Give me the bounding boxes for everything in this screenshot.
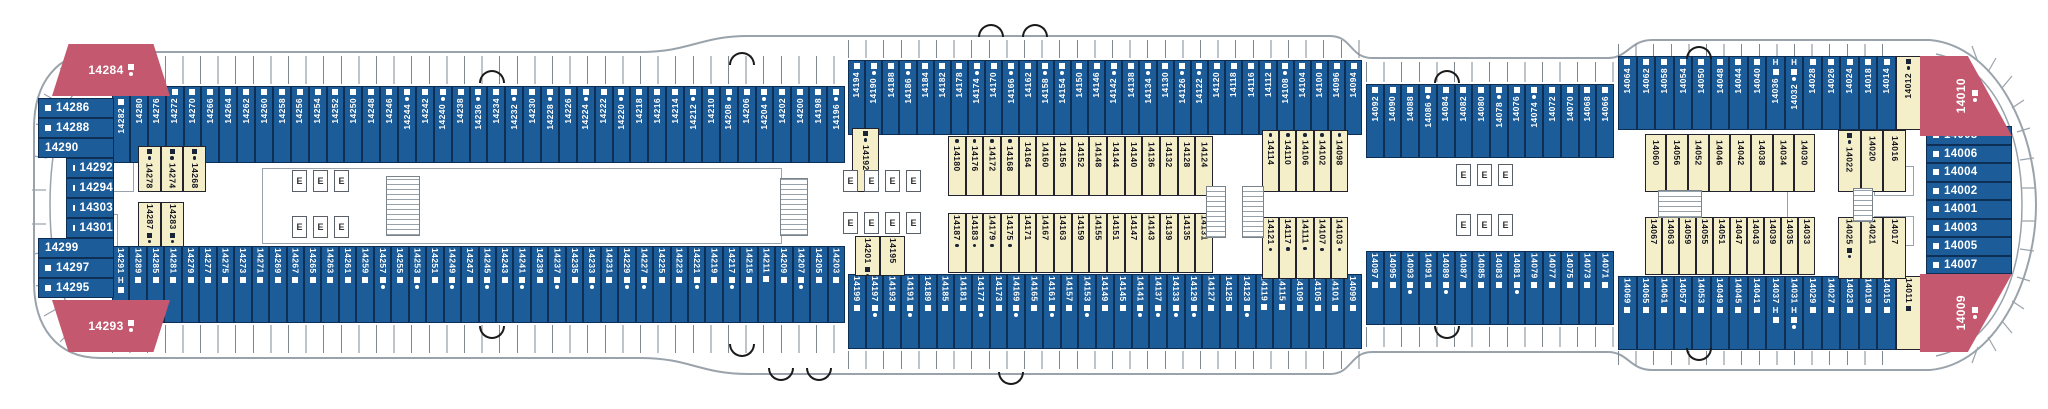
cabin-14175[interactable]: 14175 xyxy=(1001,213,1019,273)
cabin-14117[interactable]: 14117 xyxy=(1279,217,1296,279)
cabin-14257[interactable]: 14257 xyxy=(374,246,391,323)
cabin-14040[interactable]: 14040 xyxy=(1748,56,1767,130)
cabin-14282[interactable]: H14282 xyxy=(112,86,130,163)
cabin-14286[interactable]: 14286 xyxy=(38,98,114,118)
cabin-14253[interactable]: 14253 xyxy=(409,246,426,323)
cabin-14180[interactable]: 14180 xyxy=(948,136,966,196)
cabin-14075[interactable]: 14075 xyxy=(1561,251,1579,325)
cabin-14297[interactable]: 14297 xyxy=(38,258,114,278)
cabin-14004[interactable]: 14004 xyxy=(1926,163,2012,182)
cabin-14143[interactable]: 14143 xyxy=(1142,213,1160,273)
cabin-14287[interactable]: 14287 xyxy=(138,202,161,248)
cabin-number: 14117 xyxy=(1284,219,1293,244)
cabin-14218[interactable]: 14218 xyxy=(630,86,648,163)
cabin-14083[interactable]: 14083 xyxy=(1490,251,1508,325)
cabin-14090[interactable]: 14090 xyxy=(1384,84,1402,158)
cabin-14106[interactable]: 14106 xyxy=(1296,130,1313,192)
cabin-14191[interactable]: 14191 xyxy=(901,274,919,349)
cabin-14183[interactable]: 14183 xyxy=(966,213,984,273)
cabin-14206[interactable]: 14206 xyxy=(738,86,756,163)
cabin-14076[interactable]: 14076 xyxy=(1508,84,1526,158)
cabin-14177[interactable]: 14177 xyxy=(972,274,990,349)
cabin-14140[interactable]: 14140 xyxy=(1125,136,1143,196)
cabin-14021[interactable]: 14021 xyxy=(1861,217,1884,279)
cabin-14176[interactable]: 14176 xyxy=(966,136,984,196)
cabin-14050[interactable]: 14050 xyxy=(1692,56,1711,130)
wheelchair-accessible-mark: H xyxy=(1791,59,1797,67)
cabin-14214[interactable]: 14214 xyxy=(666,86,684,163)
cabin-14138[interactable]: 14138 xyxy=(1122,60,1139,135)
cabin-14163[interactable]: 14163 xyxy=(1054,213,1072,273)
cabin-14144[interactable]: 14144 xyxy=(1107,136,1125,196)
cabin-14111[interactable]: 14111 xyxy=(1296,217,1313,279)
cabin-number: 14021 xyxy=(1868,219,1877,245)
cabin-14071[interactable]: 14071 xyxy=(1596,251,1614,325)
cabin-14112[interactable]: 14112 xyxy=(1259,60,1276,135)
cabin-14087[interactable]: 14087 xyxy=(1455,251,1473,325)
cabin-14186[interactable]: 14186 xyxy=(899,60,916,135)
cabin-14126[interactable]: 14126 xyxy=(1174,60,1191,135)
cabin-number: 14189 xyxy=(923,276,932,302)
cabin-14190[interactable]: 14190 xyxy=(865,60,882,135)
cabin-number: 14179 xyxy=(988,215,997,241)
cabin-14188[interactable]: 14188 xyxy=(882,60,899,135)
cabin-14223[interactable]: 14223 xyxy=(671,246,688,323)
cabin-14158[interactable]: 14158 xyxy=(1037,60,1054,135)
cabin-14059[interactable]: 14059 xyxy=(1679,217,1696,275)
cabin-14164[interactable]: 14164 xyxy=(1019,136,1037,196)
cabin-14277[interactable]: 14277 xyxy=(199,246,216,323)
cabin-14012[interactable]: 14012 xyxy=(1896,56,1921,130)
cabin-14110[interactable]: 14110 xyxy=(1279,130,1296,192)
cabin-14072[interactable]: 14072 xyxy=(1543,84,1561,158)
cabin-14152[interactable]: 14152 xyxy=(1072,136,1090,196)
cabin-14070[interactable]: 14070 xyxy=(1561,84,1579,158)
cabin-14030[interactable]: 14030 xyxy=(1794,134,1815,192)
cabin-14303[interactable]: 14303 xyxy=(66,198,114,218)
cabin-14029[interactable]: 14029 xyxy=(1803,276,1822,350)
cabin-14007[interactable]: 14007 xyxy=(1926,256,2012,275)
cabin-14015[interactable]: 14015 xyxy=(1877,276,1896,350)
cabin-14225[interactable]: 14225 xyxy=(653,246,670,323)
cabin-14026[interactable]: 14026 xyxy=(1822,56,1841,130)
cabin-14147[interactable]: 14147 xyxy=(1125,213,1143,273)
cabin-14068[interactable]: 14068 xyxy=(1579,84,1597,158)
cabin-14242[interactable]: 14242 xyxy=(416,86,434,163)
cabin-14230[interactable]: 14230 xyxy=(523,86,541,163)
cabin-14274[interactable]: 14274 xyxy=(161,146,184,192)
cabin-14073[interactable]: 14073 xyxy=(1579,251,1597,325)
cabin-14086[interactable]: 14086 xyxy=(1419,84,1437,158)
cabin-14017[interactable]: 14017 xyxy=(1883,217,1906,279)
cabin-14139[interactable]: 14139 xyxy=(1160,213,1178,273)
cabin-14035[interactable]: 14035 xyxy=(1781,217,1798,275)
cabin-14227[interactable]: 14227 xyxy=(636,246,653,323)
cabin-14049[interactable]: 14049 xyxy=(1711,276,1730,350)
sofa-bed-square-mark xyxy=(207,89,213,95)
cabin-14095[interactable]: 14095 xyxy=(1384,251,1402,325)
cabin-14234[interactable]: 14234 xyxy=(487,86,505,163)
cabin-14174[interactable]: 14174 xyxy=(968,60,985,135)
cabin-14229[interactable]: 14229 xyxy=(618,246,635,323)
cabin-14233[interactable]: 14233 xyxy=(583,246,600,323)
cabin-14226[interactable]: 14226 xyxy=(559,86,577,163)
cabin-number: 14162 xyxy=(1024,72,1033,98)
cabin-14044[interactable]: 14044 xyxy=(1729,56,1748,130)
cabin-14299[interactable]: 14299 xyxy=(38,238,114,258)
sofa-bed-square-mark xyxy=(1865,59,1871,65)
cabin-14269[interactable]: 14269 xyxy=(269,246,286,323)
cabin-14118[interactable]: 14118 xyxy=(1225,60,1242,135)
cabin-14212[interactable]: 14212 xyxy=(684,86,702,163)
cabin-14150[interactable]: 14150 xyxy=(1071,60,1088,135)
cabin-14156[interactable]: 14156 xyxy=(1054,136,1072,196)
cabin-14262[interactable]: 14262 xyxy=(237,86,255,163)
cabin-14264[interactable]: 14264 xyxy=(219,86,237,163)
cabin-14261[interactable]: 14261 xyxy=(339,246,356,323)
cabin-14194[interactable]: 14194 xyxy=(848,60,865,135)
cabin-14132[interactable]: 14132 xyxy=(1160,136,1178,196)
cabin-14243[interactable]: 14243 xyxy=(496,246,513,323)
cabin-14166[interactable]: 14166 xyxy=(1002,60,1019,135)
cabin-14205[interactable]: 14205 xyxy=(810,246,827,323)
cabin-14104[interactable]: 14104 xyxy=(1294,60,1311,135)
cabin-14241[interactable]: 14241 xyxy=(513,246,530,323)
cabin-14252[interactable]: 14252 xyxy=(327,86,345,163)
cabin-14121[interactable]: 14121 xyxy=(1262,217,1279,279)
cabin-14045[interactable]: 14045 xyxy=(1729,276,1748,350)
cabin-14268[interactable]: 14268 xyxy=(183,146,206,192)
cabin-14115[interactable]: 14115 xyxy=(1273,274,1291,349)
cabin-14184[interactable]: 14184 xyxy=(917,60,934,135)
cabin-14057[interactable]: 14057 xyxy=(1674,276,1693,350)
suite-cabin-14293[interactable]: 14293 xyxy=(52,300,170,352)
cabin-14199[interactable]: 14199 xyxy=(848,274,866,349)
cabin-14037[interactable]: 14037H xyxy=(1766,276,1785,350)
cabin-14065[interactable]: 14065 xyxy=(1637,276,1656,350)
cabin-14248[interactable]: 14248 xyxy=(362,86,380,163)
cabin-14129[interactable]: 14129 xyxy=(1185,274,1203,349)
cabin-14207[interactable]: 14207 xyxy=(793,246,810,323)
cabin-14288[interactable]: 14288 xyxy=(38,118,114,138)
cabin-14221[interactable]: 14221 xyxy=(688,246,705,323)
cabin-14116[interactable]: 14116 xyxy=(1242,60,1259,135)
cabin-14251[interactable]: 14251 xyxy=(426,246,443,323)
cabin-14034[interactable]: 14034 xyxy=(1773,134,1794,192)
cabin-14168[interactable]: 14168 xyxy=(1001,136,1019,196)
cabin-14062[interactable]: 14062 xyxy=(1637,56,1656,130)
cabin-14239[interactable]: 14239 xyxy=(531,246,548,323)
cabin-14122[interactable]: 14122 xyxy=(1191,60,1208,135)
cabin-14096[interactable]: 14096 xyxy=(1328,60,1345,135)
cabin-14011[interactable]: 14011 xyxy=(1896,276,1921,350)
cabin-14200[interactable]: 14200 xyxy=(791,86,809,163)
cabin-14022[interactable]: 14022 xyxy=(1838,130,1861,192)
cabin-14056[interactable]: 14056 xyxy=(1666,134,1687,192)
cabin-14094[interactable]: 14094 xyxy=(1345,60,1362,135)
cabin-14136[interactable]: 14136 xyxy=(1142,136,1160,196)
cabin-14036[interactable]: H14036 xyxy=(1766,56,1785,130)
cabin-14003[interactable]: 14003 xyxy=(1926,219,2012,238)
cabin-14074[interactable]: 14074 xyxy=(1525,84,1543,158)
cabin-14165[interactable]: 14165 xyxy=(1025,274,1043,349)
cabin-14195[interactable]: 14195 xyxy=(880,236,905,276)
cabin-14031[interactable]: 14031H xyxy=(1785,276,1804,350)
cabin-14014[interactable]: 14014 xyxy=(1877,56,1896,130)
cabin-14294[interactable]: 14294 xyxy=(66,178,114,198)
cabin-14197[interactable]: 14197 xyxy=(866,274,884,349)
cabin-14023[interactable]: 14023 xyxy=(1840,276,1859,350)
cabin-14145[interactable]: 14145 xyxy=(1114,274,1132,349)
cabin-14089[interactable]: 14089 xyxy=(1437,251,1455,325)
cabin-14105[interactable]: 14105 xyxy=(1309,274,1327,349)
cabin-14079[interactable]: 14079 xyxy=(1525,251,1543,325)
cabin-14019[interactable]: 14019 xyxy=(1859,276,1878,350)
cabin-14080[interactable]: 14080 xyxy=(1472,84,1490,158)
cabin-14041[interactable]: 14041 xyxy=(1748,276,1767,350)
cabin-14220[interactable]: 14220 xyxy=(613,86,631,163)
cabin-14001[interactable]: 14001 xyxy=(1926,200,2012,219)
cabin-markers xyxy=(990,242,994,250)
cabin-14201[interactable]: 14201 xyxy=(855,236,880,276)
cabin-14170[interactable]: 14170 xyxy=(985,60,1002,135)
cabin-14279[interactable]: 14279 xyxy=(182,246,199,323)
cabin-14130[interactable]: 14130 xyxy=(1157,60,1174,135)
cabin-14273[interactable]: 14273 xyxy=(234,246,251,323)
cabin-14244[interactable]: 14244 xyxy=(398,86,416,163)
cabin-14108[interactable]: 14108 xyxy=(1277,60,1294,135)
cabin-14060[interactable]: 14060 xyxy=(1645,134,1666,192)
cabin-14025[interactable]: 14025 xyxy=(1838,217,1861,279)
cabin-14018[interactable]: 14018 xyxy=(1859,56,1878,130)
cabin-number: 14112 xyxy=(1264,72,1273,97)
cabin-14055[interactable]: 14055 xyxy=(1696,217,1713,275)
cabin-14254[interactable]: 14254 xyxy=(309,86,327,163)
cabin-14066[interactable]: 14066 xyxy=(1596,84,1614,158)
cabin-14265[interactable]: 14265 xyxy=(304,246,321,323)
sofa-bed-square-mark xyxy=(654,89,660,95)
cabin-14125[interactable]: 14125 xyxy=(1220,274,1238,349)
cabin-14232[interactable]: 14232 xyxy=(505,86,523,163)
cabin-14053[interactable]: 14053 xyxy=(1692,276,1711,350)
cabin-14238[interactable]: 14238 xyxy=(452,86,470,163)
cabin-14219[interactable]: 14219 xyxy=(705,246,722,323)
cabin-14267[interactable]: 14267 xyxy=(287,246,304,323)
cabin-14048[interactable]: 14048 xyxy=(1711,56,1730,130)
suite-cabin-14284[interactable]: 14284 xyxy=(52,44,170,96)
cabin-14069[interactable]: 14069 xyxy=(1618,276,1637,350)
cabin-14237[interactable]: 14237 xyxy=(548,246,565,323)
cabin-14149[interactable]: 14149 xyxy=(1096,274,1114,349)
cabin-14043[interactable]: 14043 xyxy=(1747,217,1764,275)
cabin-14295[interactable]: 14295 xyxy=(38,278,114,298)
cabin-14185[interactable]: 14185 xyxy=(937,274,955,349)
cabin-14088[interactable]: 14088 xyxy=(1401,84,1419,158)
cabin-14154[interactable]: 14154 xyxy=(1054,60,1071,135)
cabin-14092[interactable]: 14092 xyxy=(1366,84,1384,158)
cabin-14256[interactable]: 14256 xyxy=(291,86,309,163)
sofa-bed-square-mark xyxy=(1031,305,1037,311)
cabin-14301[interactable]: 14301 xyxy=(66,218,114,238)
cabin-14196[interactable]: 14196 xyxy=(827,86,845,163)
cabin-14222[interactable]: 14222 xyxy=(595,86,613,163)
cabin-number: 14115 xyxy=(1278,276,1287,301)
cabin-14103[interactable]: 14103 xyxy=(1331,217,1348,279)
cabin-14246[interactable]: 14246 xyxy=(380,86,398,163)
cabin-14067[interactable]: 14067 xyxy=(1645,217,1662,275)
cabin-14135[interactable]: 14135 xyxy=(1178,213,1196,273)
cabin-14271[interactable]: 14271 xyxy=(252,246,269,323)
cabin-number: 14092 xyxy=(1371,96,1380,122)
cabin-14153[interactable]: 14153 xyxy=(1078,274,1096,349)
cabin-14058[interactable]: 14058 xyxy=(1655,56,1674,130)
cabin-14107[interactable]: 14107 xyxy=(1314,217,1331,279)
cabin-14224[interactable]: 14224 xyxy=(577,86,595,163)
cabin-14211[interactable]: 14211 xyxy=(758,246,775,323)
cabin-14054[interactable]: 14054 xyxy=(1674,56,1693,130)
cabin-14258[interactable]: 14258 xyxy=(273,86,291,163)
cabin-14020[interactable]: 14020 xyxy=(1861,130,1884,192)
cabin-14093[interactable]: 14093 xyxy=(1401,251,1419,325)
cabin-14157[interactable]: 14157 xyxy=(1061,274,1079,349)
cabin-14119[interactable]: 14119 xyxy=(1256,274,1274,349)
cabin-14047[interactable]: 14047 xyxy=(1730,217,1747,275)
cabin-14114[interactable]: 14114 xyxy=(1262,130,1279,192)
cabin-14160[interactable]: 14160 xyxy=(1036,136,1054,196)
cabin-14215[interactable]: 14215 xyxy=(740,246,757,323)
cabin-14109[interactable]: 14109 xyxy=(1291,274,1309,349)
cabin-14142[interactable]: 14142 xyxy=(1105,60,1122,135)
cabin-14120[interactable]: 14120 xyxy=(1208,60,1225,135)
cabin-14182[interactable]: 14182 xyxy=(934,60,951,135)
cabin-14167[interactable]: 14167 xyxy=(1036,213,1054,273)
cabin-14064[interactable]: 14064 xyxy=(1618,56,1637,130)
cabin-14099[interactable]: 14099 xyxy=(1344,274,1362,349)
cabin-14292[interactable]: 14292 xyxy=(66,158,114,178)
cabin-14162[interactable]: 14162 xyxy=(1019,60,1036,135)
cabin-markers xyxy=(888,61,894,71)
cabin-14263[interactable]: 14263 xyxy=(321,246,338,323)
cabin-14278[interactable]: 14278 xyxy=(138,146,161,192)
cabin-14161[interactable]: 14161 xyxy=(1043,274,1061,349)
cabin-14181[interactable]: 14181 xyxy=(954,274,972,349)
cabin-14159[interactable]: 14159 xyxy=(1072,213,1090,273)
cabin-14179[interactable]: 14179 xyxy=(983,213,1001,273)
cabin-14204[interactable]: 14204 xyxy=(756,86,774,163)
cabin-14081[interactable]: 14081 xyxy=(1508,251,1526,325)
cabin-14100[interactable]: 14100 xyxy=(1311,60,1328,135)
cabin-14193[interactable]: 14193 xyxy=(883,274,901,349)
cabin-14235[interactable]: 14235 xyxy=(566,246,583,323)
cabin-14038[interactable]: 14038 xyxy=(1751,134,1772,192)
cabin-14005[interactable]: 14005 xyxy=(1926,237,2012,256)
cabin-14078[interactable]: 14078 xyxy=(1490,84,1508,158)
cabin-14027[interactable]: 14027 xyxy=(1822,276,1841,350)
cabin-14189[interactable]: 14189 xyxy=(919,274,937,349)
cabin-14169[interactable]: 14169 xyxy=(1007,274,1025,349)
cabin-14148[interactable]: 14148 xyxy=(1089,136,1107,196)
cabin-14216[interactable]: 14216 xyxy=(648,86,666,163)
cabin-14128[interactable]: 14128 xyxy=(1178,136,1196,196)
cabin-14198[interactable]: 14198 xyxy=(809,86,827,163)
cabin-14171[interactable]: 14171 xyxy=(1019,213,1037,273)
cabin-14202[interactable]: 14202 xyxy=(773,86,791,163)
cabin-14052[interactable]: 14052 xyxy=(1688,134,1709,192)
cabin-14039[interactable]: 14039 xyxy=(1764,217,1781,275)
cabin-14134[interactable]: 14134 xyxy=(1139,60,1156,135)
cabin-14283[interactable]: 14283 xyxy=(161,202,184,248)
cabin-14209[interactable]: 14209 xyxy=(775,246,792,323)
cabin-14290[interactable]: 14290 xyxy=(38,138,114,158)
cabin-14173[interactable]: 14173 xyxy=(990,274,1008,349)
cabin-14085[interactable]: 14085 xyxy=(1472,251,1490,325)
cabin-14046[interactable]: 14046 xyxy=(1709,134,1730,192)
cabin-14208[interactable]: 14208 xyxy=(720,86,738,163)
cabin-14063[interactable]: 14063 xyxy=(1662,217,1679,275)
cabin-14172[interactable]: 14172 xyxy=(983,136,1001,196)
cabin-14187[interactable]: 14187 xyxy=(948,213,966,273)
sofa-bed-square-mark xyxy=(1334,63,1340,69)
cabin-14203[interactable]: 14203 xyxy=(828,246,845,323)
cabin-14006[interactable]: 14006 xyxy=(1926,145,2012,164)
cabin-14275[interactable]: 14275 xyxy=(217,246,234,323)
cabin-number: 14019 xyxy=(1864,278,1873,304)
cabin-14082[interactable]: 14082 xyxy=(1455,84,1473,158)
cabin-14146[interactable]: 14146 xyxy=(1088,60,1105,135)
cabin-14024[interactable]: 14024 xyxy=(1840,56,1859,130)
cabin-14033[interactable]: 14033 xyxy=(1798,217,1815,275)
cabin-14228[interactable]: 14228 xyxy=(541,86,559,163)
cabin-14084[interactable]: 14084 xyxy=(1437,84,1455,158)
cabin-14123[interactable]: 14123 xyxy=(1238,274,1256,349)
cabin-14210[interactable]: 14210 xyxy=(702,86,720,163)
cabin-14281[interactable]: 14281 xyxy=(164,246,181,323)
cabin-14091[interactable]: 14091 xyxy=(1419,251,1437,325)
cabin-14151[interactable]: 14151 xyxy=(1107,213,1125,273)
cabin-14002[interactable]: 14002 xyxy=(1926,182,2012,201)
cabin-14217[interactable]: 14217 xyxy=(723,246,740,323)
cabin-14259[interactable]: 14259 xyxy=(356,246,373,323)
cabin-14155[interactable]: 14155 xyxy=(1089,213,1107,273)
cabin-14255[interactable]: 14255 xyxy=(391,246,408,323)
cabin-14098[interactable]: 14098 xyxy=(1331,130,1348,192)
cabin-14032[interactable]: H14032 xyxy=(1785,56,1804,130)
cabin-14101[interactable]: 14101 xyxy=(1326,274,1344,349)
cabin-14127[interactable]: 14127 xyxy=(1202,274,1220,349)
cabin-14260[interactable]: 14260 xyxy=(255,86,273,163)
cabin-14016[interactable]: 14016 xyxy=(1883,130,1906,192)
cabin-14051[interactable]: 14051 xyxy=(1713,217,1730,275)
cabin-14247[interactable]: 14247 xyxy=(461,246,478,323)
cabin-14231[interactable]: 14231 xyxy=(601,246,618,323)
cabin-14028[interactable]: 14028 xyxy=(1803,56,1822,130)
cabin-14061[interactable]: 14061 xyxy=(1655,276,1674,350)
cabin-14250[interactable]: 14250 xyxy=(344,86,362,163)
cabin-14141[interactable]: 14141 xyxy=(1132,274,1150,349)
cabin-14178[interactable]: 14178 xyxy=(951,60,968,135)
cabin-14097[interactable]: 14097 xyxy=(1366,251,1384,325)
cabin-14240[interactable]: 14240 xyxy=(434,86,452,163)
cabin-14245[interactable]: 14245 xyxy=(479,246,496,323)
cabin-14133[interactable]: 14133 xyxy=(1167,274,1185,349)
cabin-number: 14157 xyxy=(1065,276,1074,302)
cabin-14137[interactable]: 14137 xyxy=(1149,274,1167,349)
cabin-14042[interactable]: 14042 xyxy=(1730,134,1751,192)
cabin-14077[interactable]: 14077 xyxy=(1543,251,1561,325)
cabin-14249[interactable]: 14249 xyxy=(444,246,461,323)
cabin-14236[interactable]: 14236 xyxy=(470,86,488,163)
cabin-14102[interactable]: 14102 xyxy=(1314,130,1331,192)
